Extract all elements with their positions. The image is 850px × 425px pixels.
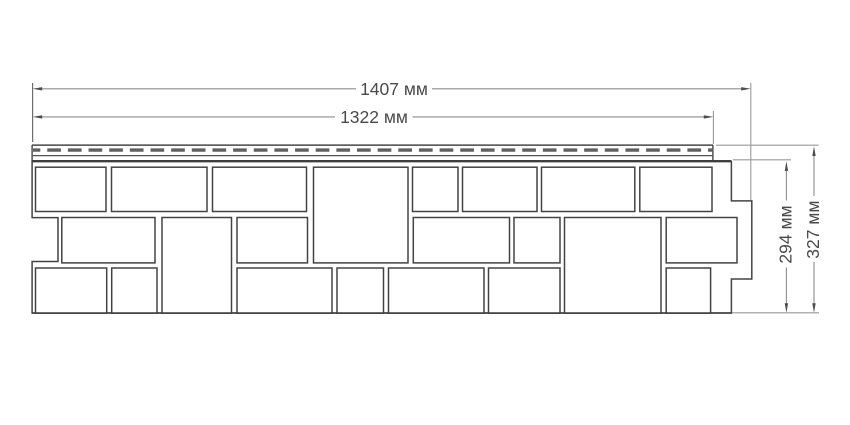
svg-text:294 мм: 294 мм [776, 205, 796, 263]
svg-text:1322 мм: 1322 мм [340, 107, 408, 127]
svg-text:1407 мм: 1407 мм [360, 79, 428, 99]
svg-text:327 мм: 327 мм [803, 201, 823, 259]
